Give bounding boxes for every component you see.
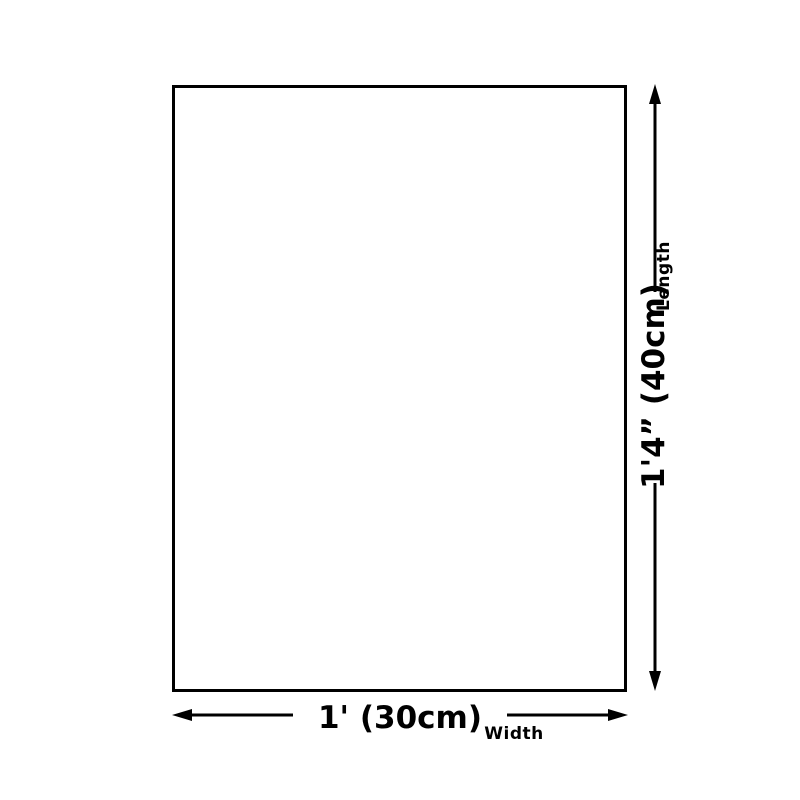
width-arrow-right	[507, 709, 628, 721]
length-dimension-value: 1'4” (40cm)	[636, 283, 672, 489]
product-outline	[172, 85, 627, 692]
size-diagram: Length 1'4” (40cm) 1' (30cm) Width	[0, 0, 800, 800]
width-dimension-value: 1' (30cm)	[318, 700, 482, 736]
length-arrow-down	[649, 483, 661, 691]
width-arrow-left	[172, 709, 293, 721]
width-axis-label: Width	[484, 724, 543, 744]
